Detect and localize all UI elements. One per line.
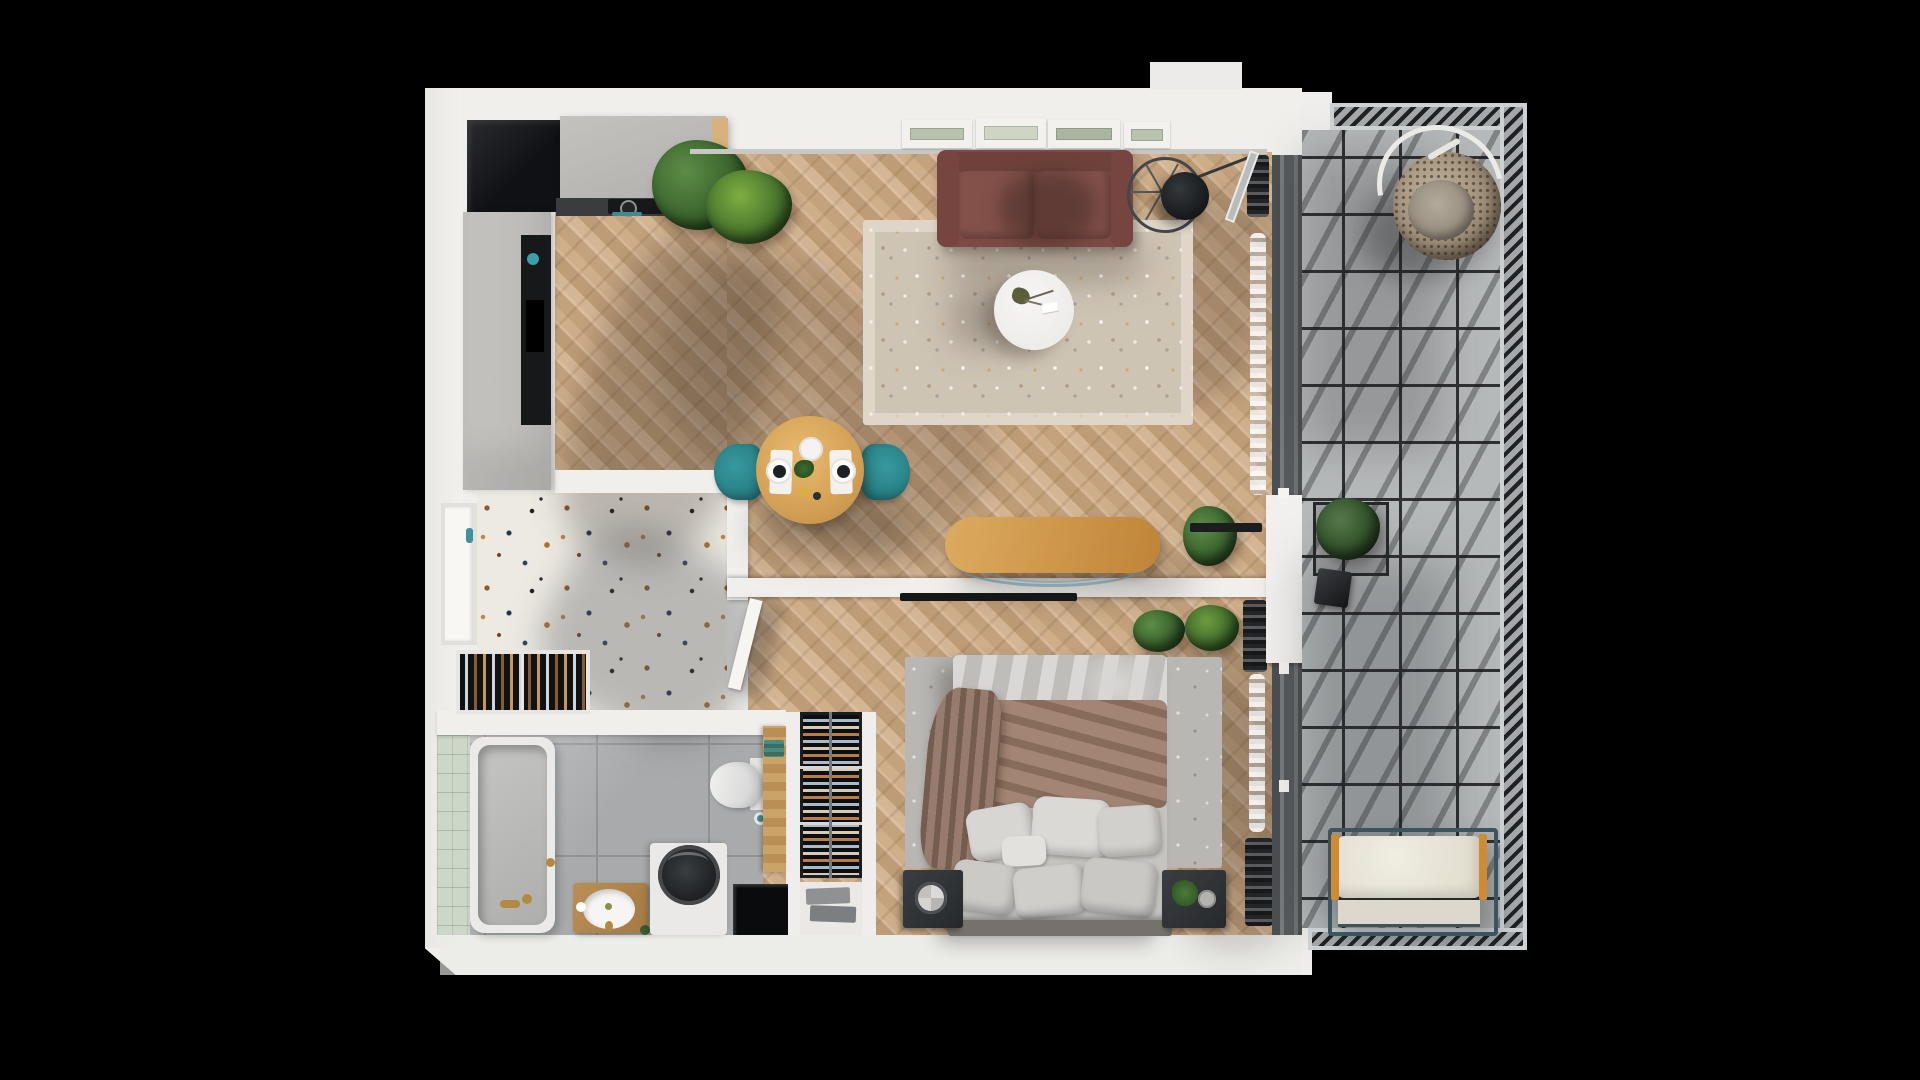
pillow-small [1001, 835, 1047, 867]
vanity-plant [640, 925, 650, 935]
window-frame-2 [976, 118, 1046, 148]
console-table [945, 517, 1160, 573]
glass-handle-2 [1279, 780, 1289, 792]
shoe-rack-center-rail [829, 712, 832, 878]
balcony-railing-right [1500, 103, 1527, 950]
window-frame-4 [1124, 122, 1170, 148]
window-pane-1 [907, 125, 967, 143]
dining-pepper-mill [813, 492, 821, 500]
pillow-6 [1079, 856, 1158, 917]
kitchen-towel [612, 212, 642, 216]
window-pane-3 [1053, 125, 1115, 143]
bench-rail-right [1479, 834, 1487, 900]
dining-lemon [799, 487, 809, 497]
plate-left-food [773, 465, 786, 478]
bench-rail-left [1331, 834, 1339, 900]
bench-lower-ledge [1338, 900, 1480, 927]
bed-blanket [990, 700, 1167, 808]
bottom-wall-shading [440, 932, 1302, 975]
bedroom-sheer-curtain [1249, 674, 1265, 832]
balcony-lantern [1314, 568, 1353, 608]
window-pane-2 [981, 123, 1041, 143]
towel-gray-1 [806, 887, 851, 905]
pillow-5 [1012, 862, 1089, 919]
oven-knob [527, 253, 539, 265]
entry-door-handle [466, 528, 473, 543]
sink-drain [605, 903, 612, 910]
sink-faucet [605, 921, 613, 931]
dining-chair-right [858, 444, 910, 500]
bathtub-drain [546, 858, 555, 867]
bathtub-interior [478, 745, 547, 925]
bedroom-curtain-stack [1243, 600, 1267, 672]
living-sheer-curtain [1250, 233, 1266, 495]
wall-threshold [555, 470, 727, 493]
nightstand-right-cup [1198, 890, 1216, 908]
dining-tray [799, 437, 823, 461]
egg-chair-cushion [1408, 180, 1474, 240]
bathtub-faucet [500, 900, 520, 908]
entry-rack-divider [521, 652, 524, 712]
bathroom-green-tile-wall [437, 735, 470, 935]
towel-gray-2 [810, 905, 857, 923]
sofa-armrest-left [937, 150, 959, 247]
cabinet-towels-teal [764, 740, 784, 757]
wall-closet-left [786, 712, 800, 935]
bath-floor-mat [733, 884, 788, 935]
bedroom-tv [900, 593, 1077, 601]
vanity-soap [576, 902, 586, 912]
plate-right-food [837, 465, 850, 478]
sofa-backrest [941, 152, 1129, 172]
window-frame-1 [902, 120, 972, 148]
bench-cushion [1338, 836, 1480, 898]
glass-wall-living [1272, 155, 1302, 495]
media-bar [1190, 523, 1262, 532]
coffee-table [994, 270, 1074, 350]
floorplan-stage [0, 0, 1920, 1080]
washer-lid-highlight [668, 852, 708, 871]
glass-handle-1 [1279, 662, 1289, 674]
wall-closet-right [862, 712, 876, 935]
toilet [710, 762, 762, 808]
bed-headboard [948, 920, 1172, 936]
glass-wall-bedroom [1272, 663, 1302, 935]
nightstand-right-plant [1172, 880, 1198, 906]
sofa-plant-shadow [1000, 172, 1095, 244]
bedroom-radiator [1245, 838, 1273, 926]
floor-lamp-shade [1161, 172, 1209, 220]
wall-block-exterior-top [1150, 62, 1242, 90]
window-frame-3 [1048, 120, 1120, 148]
bathtub-faucet-handle [522, 894, 532, 904]
oven-screen [526, 300, 544, 352]
nightstand-left-dish [915, 882, 947, 914]
window-pane-4 [1128, 126, 1166, 144]
glass-notch-1 [1278, 488, 1289, 499]
pillow-3 [1096, 804, 1161, 858]
